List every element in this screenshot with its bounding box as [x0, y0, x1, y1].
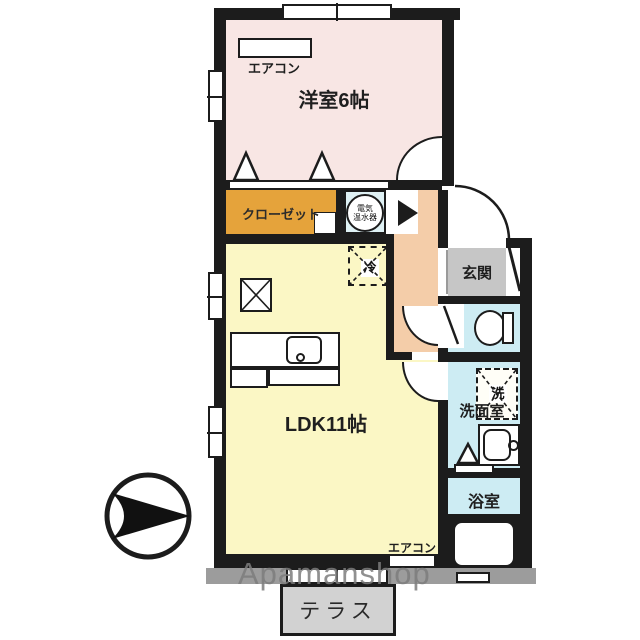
wall-closet-divider: [336, 190, 344, 234]
washroom-doorway: [440, 362, 448, 400]
kitchen-sink-drain-icon: [296, 353, 305, 362]
wall-toilet-bottom: [438, 352, 532, 362]
wall-column-left-a: [438, 190, 448, 248]
entrance-door-leaf: [508, 243, 520, 291]
wall-western-right: [442, 8, 454, 186]
window-ldk-left-upper: [208, 272, 224, 320]
kitchen-hatch-box: [240, 278, 272, 312]
wall-closet-bottom: [226, 234, 394, 244]
refrigerator-icon: 冷: [348, 246, 388, 286]
window-western-top: [282, 4, 392, 20]
kitchen-counter-low-right: [268, 368, 340, 386]
water-heater-box: 電気温水器: [344, 190, 386, 234]
window-ldk-left-lower: [208, 406, 224, 458]
wall-genkan-bottom: [438, 296, 532, 304]
room-label-bathroom: 浴室: [448, 488, 520, 512]
room-label-genkan: 玄関: [448, 262, 506, 283]
room-label-closet: クローゼット: [226, 204, 336, 223]
bath-door-bar: [454, 464, 494, 474]
wall-hall-bottom: [386, 352, 412, 360]
closet-opening: [230, 180, 388, 190]
kitchen-counter-low-left: [230, 368, 268, 388]
room-label-washroom: 洗面室: [444, 400, 520, 421]
sink-icon: [478, 424, 520, 466]
kitchen-counter-icon: [230, 332, 340, 368]
window-bathroom: [456, 572, 490, 583]
wall-entry-stub: [506, 238, 532, 248]
room-label-terrace: テラス: [299, 595, 377, 625]
toilet-tank-icon: [502, 312, 514, 344]
floor-plan: 電気温水器 エアコン エアコン: [0, 0, 640, 640]
toilet-doorway: [440, 304, 464, 348]
bathtub-icon: [452, 520, 516, 568]
aircon-bedroom-label: エアコン: [232, 58, 316, 77]
entrance-door-arc: [455, 186, 509, 240]
room-label-ldk: LDK11帖: [266, 408, 386, 437]
ldk-hall-doorway: [394, 190, 418, 234]
compass-icon: [107, 475, 190, 557]
watermark: Apamanshop: [238, 556, 431, 592]
water-heater-icon: 電気温水器: [346, 194, 384, 232]
aircon-unit-icon: [238, 38, 312, 58]
window-western-left: [208, 70, 224, 122]
refrigerator-label: 冷: [361, 259, 379, 277]
room-label-western: 洋室6帖: [226, 84, 442, 113]
